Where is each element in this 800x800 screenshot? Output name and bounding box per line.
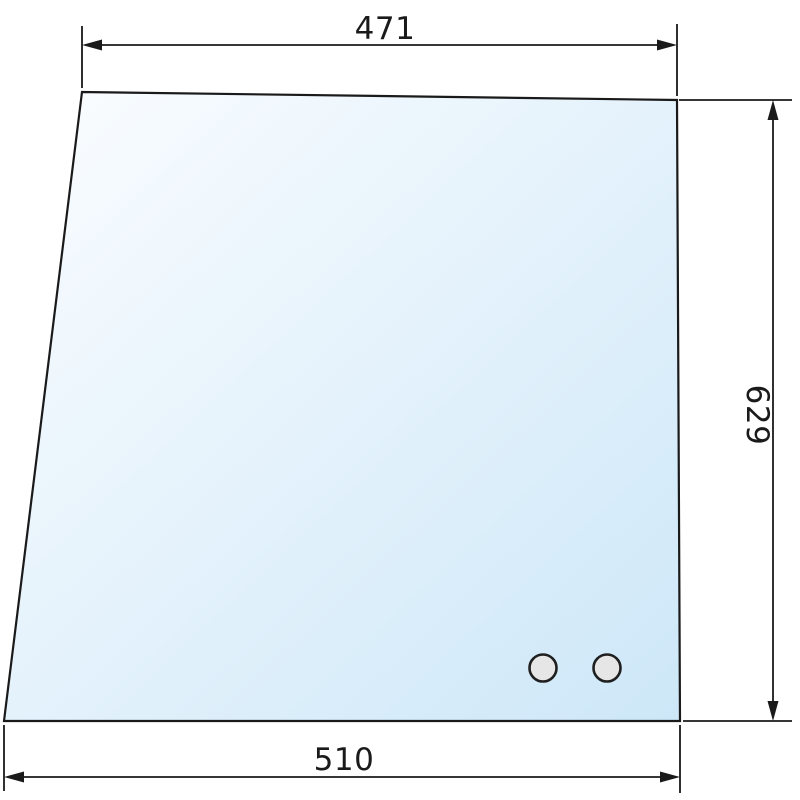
arrowhead-down-icon	[768, 701, 779, 721]
arrowhead-right-icon	[657, 40, 677, 51]
dimension-bottom: 510	[4, 725, 680, 793]
dimension-label-right-height: 629	[739, 385, 775, 446]
dimension-top: 471	[82, 11, 677, 96]
arrowhead-up-icon	[768, 100, 779, 120]
glass-panel-outline	[4, 92, 680, 721]
technical-drawing: 471 629 510	[0, 0, 800, 800]
arrowhead-left-bottom-icon	[4, 772, 24, 783]
mounting-hole-right	[594, 655, 621, 682]
arrowhead-right-bottom-icon	[660, 772, 680, 783]
dimension-right: 629	[679, 100, 792, 721]
arrowhead-left-icon	[82, 40, 102, 51]
mounting-hole-left	[530, 655, 557, 682]
dimension-label-top-width: 471	[355, 11, 416, 47]
dimension-label-bottom-width: 510	[314, 742, 375, 778]
drawing-canvas: 471 629 510	[0, 0, 800, 800]
